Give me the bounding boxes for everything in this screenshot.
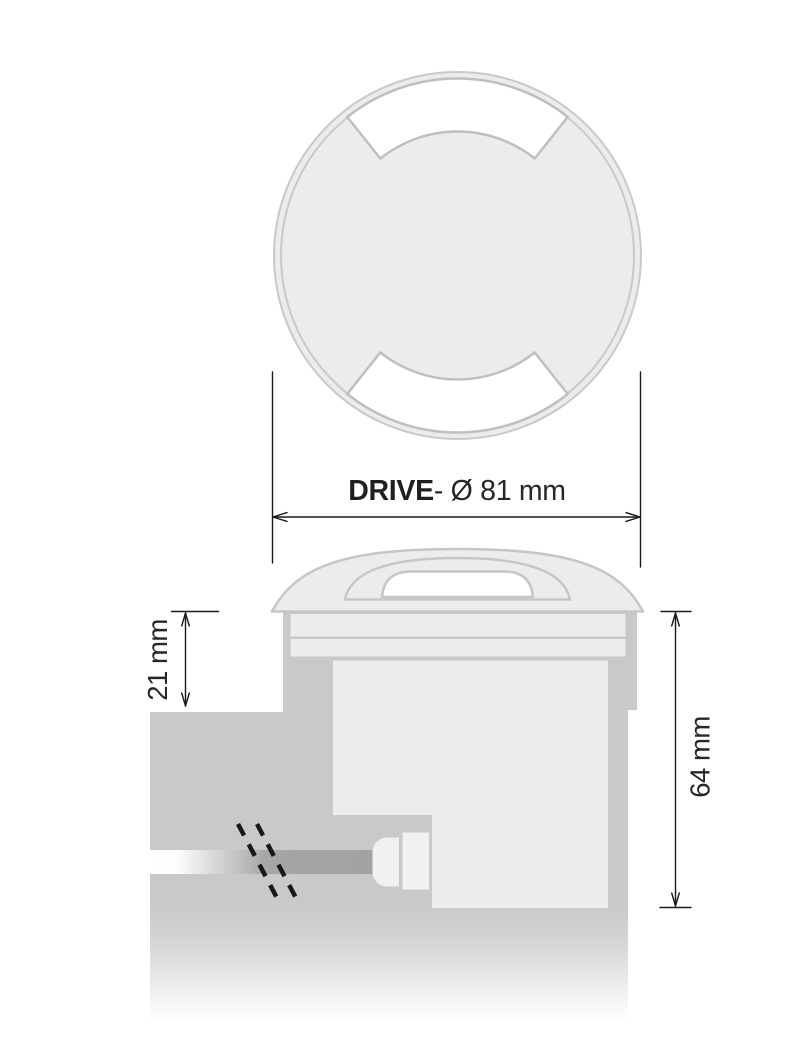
cap-window — [382, 572, 533, 598]
ground-fade — [145, 905, 657, 1027]
top-view — [274, 72, 641, 439]
cable-gland-nut — [373, 838, 400, 887]
side-view — [145, 549, 657, 1027]
dim-21-label: 21 mm — [142, 619, 173, 701]
drive-dimension-diagram: DRIVE- Ø 81 mm — [0, 0, 806, 1049]
fixture-collar — [290, 613, 627, 658]
dimension-21mm: 21 mm — [142, 612, 219, 707]
cable-gland-body — [403, 833, 430, 890]
dimension-64mm: 64 mm — [660, 612, 716, 908]
diagram-svg: DRIVE- Ø 81 mm — [0, 0, 806, 1049]
diameter-label: DRIVE- Ø 81 mm — [348, 475, 566, 507]
dim-64-label: 64 mm — [685, 716, 716, 798]
